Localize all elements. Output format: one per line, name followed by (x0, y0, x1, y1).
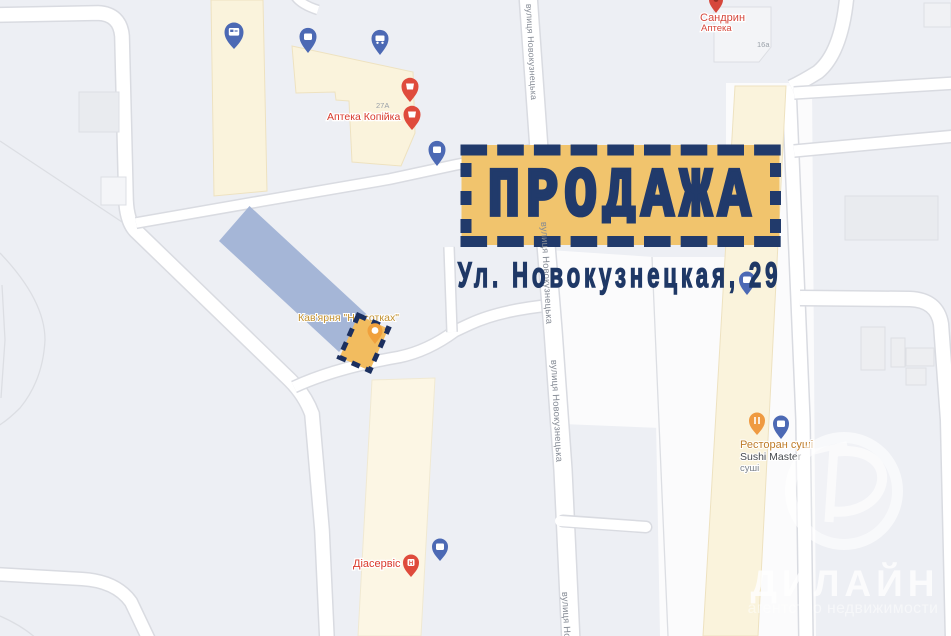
svg-text:16а: 16а (757, 40, 770, 49)
svg-text:Н: Н (409, 561, 413, 567)
svg-text:Sushi Master: Sushi Master (740, 451, 802, 463)
svg-text:агентство недвижимости: агентство недвижимости (748, 600, 939, 617)
svg-text:Кав'ярня "На сотках": Кав'ярня "На сотках" (298, 312, 399, 324)
svg-text:Аптека Копійка: Аптека Копійка (327, 111, 400, 123)
svg-text:ДИЛАЙН: ДИЛАЙН (751, 562, 940, 604)
svg-text:Ул. Новокузнецкая, 29: Ул. Новокузнецкая, 29 (458, 256, 782, 295)
svg-text:суші: суші (740, 463, 759, 474)
svg-text:Діасервіс: Діасервіс (353, 558, 401, 570)
svg-text:Ресторан суші: Ресторан суші (740, 439, 813, 451)
svg-text:27А: 27А (376, 101, 389, 110)
svg-text:Аптека: Аптека (701, 23, 732, 34)
